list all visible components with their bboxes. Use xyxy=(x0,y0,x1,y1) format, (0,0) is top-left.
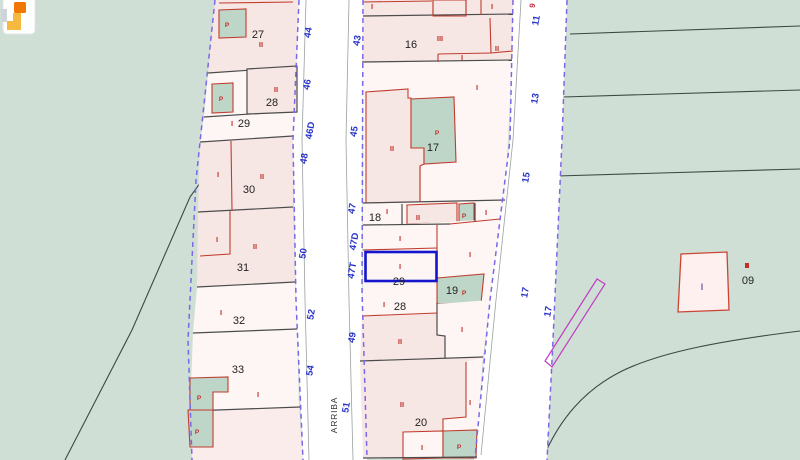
parcel-label: 31 xyxy=(237,262,249,274)
street-name-label: ARRIBA xyxy=(329,397,339,433)
parcel-31-shape[interactable] xyxy=(197,207,295,287)
roman-ii: II xyxy=(260,172,264,181)
p-mark: P xyxy=(462,213,467,220)
roman-i: I xyxy=(371,2,373,11)
p-mark: P xyxy=(435,130,440,137)
roman-i: I xyxy=(399,234,401,243)
parcel-30-shape[interactable] xyxy=(198,136,293,212)
roman-iii: III xyxy=(437,34,443,43)
roman-i: I xyxy=(491,2,493,11)
roman-i: I xyxy=(421,443,423,452)
street-number: 50 xyxy=(297,247,310,259)
street-number: 17 xyxy=(542,305,555,317)
street-number: 13 xyxy=(529,92,542,104)
p-mark: P xyxy=(219,96,224,103)
p-mark: P xyxy=(457,444,462,451)
roman-i: I xyxy=(217,170,219,179)
roman-ii: II xyxy=(416,213,420,222)
roman-i: I xyxy=(469,250,471,259)
roman-ii: II xyxy=(400,400,404,409)
roman-ii: II xyxy=(253,242,257,251)
parcel-label: 30 xyxy=(243,184,255,196)
p-mark: P xyxy=(225,22,230,29)
map-svg: 27 28 29 30 31 32 33 16 17 18 29 19 28 2… xyxy=(0,0,800,460)
roman-i: I xyxy=(461,325,463,334)
logo-gray-square xyxy=(1,9,7,22)
catastro-logo-button[interactable] xyxy=(1,0,35,34)
parcel-label: 19 xyxy=(446,285,458,297)
logo-orange-square-icon xyxy=(14,2,26,13)
roman-i: I xyxy=(383,300,385,309)
roman-i: I xyxy=(231,119,233,128)
parcel-label: 28 xyxy=(266,97,278,109)
street-number: 48 xyxy=(298,152,311,164)
roman-i: I xyxy=(476,83,478,92)
parcel-label: 20 xyxy=(415,417,427,429)
roman-ii: II xyxy=(390,144,394,153)
street-number: 49 xyxy=(346,331,359,343)
street-number: 52 xyxy=(305,308,318,320)
parcel-19-shape[interactable] xyxy=(437,274,484,304)
parcel-28-middle-lower[interactable] xyxy=(360,313,445,361)
street-number: 17 xyxy=(519,286,532,298)
parcel-label: 16 xyxy=(405,39,417,51)
roman-i: I xyxy=(461,53,463,62)
street-number: 46 xyxy=(301,78,314,90)
roman-i: I xyxy=(257,390,259,399)
parcel-label: 33 xyxy=(232,364,244,376)
parcel-label-09: 09 xyxy=(742,275,754,287)
roman-ii: II xyxy=(495,44,499,53)
parcel-09-shape[interactable] xyxy=(678,252,729,312)
cadastral-map-view: 27 28 29 30 31 32 33 16 17 18 29 19 28 2… xyxy=(0,0,800,460)
roman-i: I xyxy=(469,398,471,407)
street-number: 43 xyxy=(351,34,364,46)
roman-i: I xyxy=(399,262,401,271)
roman-i-purple: I xyxy=(701,282,704,292)
parcel-18-building[interactable] xyxy=(407,203,457,224)
parcel-label: 17 xyxy=(427,142,439,154)
roman-ii: II xyxy=(398,337,402,346)
parcel-label: 18 xyxy=(369,212,381,224)
roman-i: I xyxy=(485,208,487,217)
parcel-label: 28 xyxy=(394,301,406,313)
street-number: 47 xyxy=(346,202,359,214)
p-mark: P xyxy=(197,395,202,402)
roman-ii: II xyxy=(274,85,278,94)
roman-ii: II xyxy=(259,40,263,49)
p-mark: P xyxy=(462,290,467,297)
parcel-label: 29 xyxy=(238,118,250,130)
roman-i: I xyxy=(386,207,388,216)
parcel-09-red-mark xyxy=(745,263,749,268)
roman-i: I xyxy=(220,308,222,317)
p-mark: P xyxy=(195,429,200,436)
roman-i: I xyxy=(216,235,218,244)
parcel-label: 32 xyxy=(233,315,245,327)
parcel-label: 29 xyxy=(393,276,405,288)
